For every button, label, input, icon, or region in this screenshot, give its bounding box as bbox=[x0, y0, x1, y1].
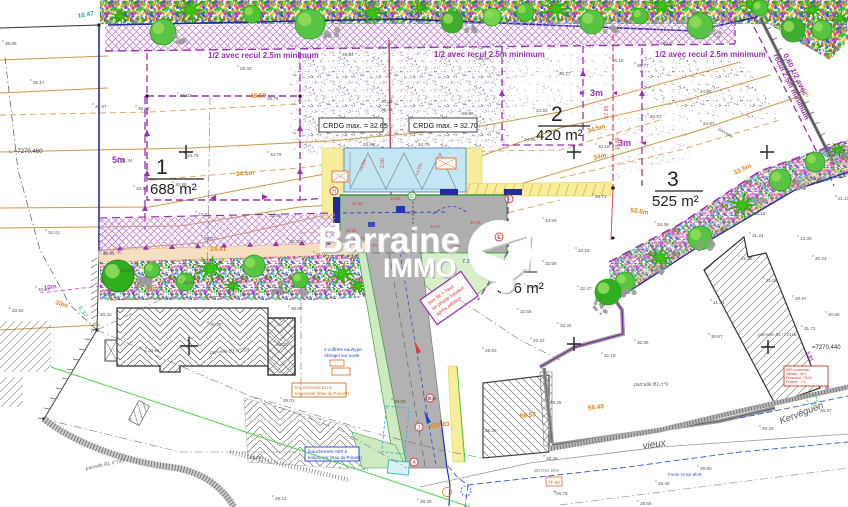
svg-text:29.37: 29.37 bbox=[820, 408, 832, 413]
svg-text:branchement AEP à: branchement AEP à bbox=[308, 449, 348, 454]
svg-text:34.79: 34.79 bbox=[418, 142, 430, 147]
svg-text:31.72: 31.72 bbox=[804, 326, 816, 331]
svg-text:32.22: 32.22 bbox=[533, 338, 545, 343]
svg-text:31.34: 31.34 bbox=[121, 158, 133, 163]
svg-text:688 m²: 688 m² bbox=[150, 181, 197, 198]
svg-text:G: G bbox=[410, 194, 414, 200]
svg-text:35.58: 35.58 bbox=[138, 106, 150, 111]
svg-text:35.77: 35.77 bbox=[637, 63, 649, 68]
svg-text:31.24: 31.24 bbox=[752, 233, 764, 238]
svg-text:30.48: 30.48 bbox=[120, 268, 132, 273]
svg-text:33.71: 33.71 bbox=[595, 194, 607, 199]
svg-text:525 m²: 525 m² bbox=[652, 193, 699, 210]
svg-text:31.15: 31.15 bbox=[838, 196, 848, 201]
svg-text:33.18: 33.18 bbox=[578, 248, 590, 253]
svg-text:33.23: 33.23 bbox=[183, 280, 195, 285]
svg-text:CRDG max. = 32.70: CRDG max. = 32.70 bbox=[413, 121, 478, 130]
svg-text:Abrogel sur socle: Abrogel sur socle bbox=[324, 353, 360, 358]
svg-text:28.95: 28.95 bbox=[425, 396, 437, 401]
svg-text:Penteée : 1,9: Penteée : 1,9 bbox=[786, 380, 805, 384]
svg-text:32.55: 32.55 bbox=[390, 196, 401, 201]
svg-text:34.41: 34.41 bbox=[48, 230, 60, 235]
svg-text:30.23: 30.23 bbox=[815, 256, 827, 261]
svg-text:CRDG max. = 32.65: CRDG max. = 32.65 bbox=[323, 121, 388, 130]
svg-text:28.46: 28.46 bbox=[658, 481, 670, 486]
svg-text:2: 2 bbox=[551, 103, 563, 126]
svg-text:36.17: 36.17 bbox=[33, 80, 45, 85]
svg-text:parcelle B1 n°9: parcelle B1 n°9 bbox=[633, 382, 668, 388]
svg-text:28.55: 28.55 bbox=[640, 501, 652, 506]
svg-text:34.55: 34.55 bbox=[404, 210, 416, 215]
svg-text:33.29: 33.29 bbox=[104, 292, 116, 297]
svg-text:24.87: 24.87 bbox=[703, 121, 715, 126]
svg-text:33m: 33m bbox=[145, 285, 158, 292]
svg-text:32.46: 32.46 bbox=[352, 201, 363, 206]
svg-text:28.39: 28.39 bbox=[546, 456, 558, 461]
svg-text:32.58: 32.58 bbox=[520, 309, 532, 314]
svg-text:28.93: 28.93 bbox=[394, 399, 406, 404]
svg-text:1: 1 bbox=[156, 156, 168, 179]
svg-text:30.51: 30.51 bbox=[103, 251, 115, 256]
svg-text:=7270,440: =7270,440 bbox=[812, 345, 841, 351]
svg-text:34.75: 34.75 bbox=[187, 153, 199, 158]
svg-text:30.88: 30.88 bbox=[175, 182, 187, 187]
svg-text:29.54: 29.54 bbox=[342, 52, 354, 57]
svg-text:32.47: 32.47 bbox=[580, 286, 592, 291]
svg-text:25.15: 25.15 bbox=[612, 58, 624, 63]
svg-text:34.83: 34.83 bbox=[536, 108, 548, 113]
svg-text:-17.89: -17.89 bbox=[604, 106, 610, 120]
svg-text:2.00: 2.00 bbox=[380, 158, 386, 168]
svg-text:29.68: 29.68 bbox=[478, 56, 490, 61]
svg-text:30.67: 30.67 bbox=[711, 334, 723, 339]
svg-text:30.43: 30.43 bbox=[100, 312, 112, 317]
svg-text:29.01: 29.01 bbox=[283, 398, 295, 403]
svg-text:2 coffrets eau/type: 2 coffrets eau/type bbox=[324, 347, 362, 352]
svg-text:34.48: 34.48 bbox=[657, 222, 669, 227]
svg-text:28.76: 28.76 bbox=[556, 491, 568, 496]
svg-text:35.41: 35.41 bbox=[381, 107, 393, 112]
svg-text:30.73: 30.73 bbox=[290, 239, 302, 244]
svg-text:parcelle B1 n°21№: parcelle B1 n°21№ bbox=[757, 332, 797, 337]
svg-text:33.92: 33.92 bbox=[12, 308, 24, 313]
svg-text:35.67: 35.67 bbox=[95, 104, 107, 109]
svg-text:temporiser (Eau du Ponant): temporiser (Eau du Ponant) bbox=[295, 391, 349, 396]
svg-text:∟=7270,460: ∟=7270,460 bbox=[8, 149, 43, 155]
svg-text:28.25: 28.25 bbox=[485, 428, 497, 433]
svg-text:30.96: 30.96 bbox=[637, 340, 649, 345]
svg-text:30.07: 30.07 bbox=[204, 236, 216, 241]
svg-text:30.77: 30.77 bbox=[559, 71, 571, 76]
svg-text:34.76: 34.76 bbox=[270, 152, 282, 157]
svg-text:1/2 avec recul 2.5m minimum: 1/2 avec recul 2.5m minimum bbox=[208, 51, 319, 60]
svg-text:3m: 3m bbox=[590, 88, 603, 98]
svg-text:30.35: 30.35 bbox=[210, 322, 222, 327]
svg-text:34.18: 34.18 bbox=[754, 211, 766, 216]
svg-text:TP 60: TP 60 bbox=[548, 480, 560, 485]
svg-text:30.56: 30.56 bbox=[148, 348, 160, 353]
svg-text:30.98: 30.98 bbox=[527, 284, 539, 289]
svg-text:29.33: 29.33 bbox=[240, 66, 252, 71]
svg-text:420 m²: 420 m² bbox=[536, 127, 583, 144]
svg-text:BETON Ø49: BETON Ø49 bbox=[534, 468, 560, 473]
svg-text:28.38: 28.38 bbox=[250, 455, 262, 460]
svg-text:30.85: 30.85 bbox=[828, 312, 840, 317]
svg-text:33.27: 33.27 bbox=[38, 287, 50, 292]
svg-text:14.89: 14.89 bbox=[615, 137, 621, 150]
svg-text:33.83: 33.83 bbox=[198, 212, 210, 217]
svg-text:24.85: 24.85 bbox=[700, 89, 712, 94]
svg-text:35.09: 35.09 bbox=[462, 111, 474, 116]
svg-text:33.15: 33.15 bbox=[810, 176, 822, 181]
svg-text:29.25: 29.25 bbox=[550, 400, 562, 405]
svg-text:13.39: 13.39 bbox=[800, 236, 812, 241]
svg-text:30.97: 30.97 bbox=[795, 296, 807, 301]
svg-text:3: 3 bbox=[667, 168, 679, 191]
svg-text:30.59: 30.59 bbox=[276, 290, 288, 295]
svg-text:34.24: 34.24 bbox=[136, 186, 148, 191]
svg-text:32.76: 32.76 bbox=[470, 220, 481, 225]
svg-text:34.5m: 34.5m bbox=[236, 170, 255, 178]
svg-text:31.31: 31.31 bbox=[713, 300, 725, 305]
svg-text:branchement EU à: branchement EU à bbox=[295, 385, 332, 390]
svg-text:48.59: 48.59 bbox=[250, 92, 267, 100]
svg-text:29.14: 29.14 bbox=[275, 496, 287, 501]
svg-text:36.03: 36.03 bbox=[180, 93, 192, 98]
svg-text:34.18: 34.18 bbox=[598, 144, 610, 149]
svg-text:35.78: 35.78 bbox=[267, 96, 279, 101]
svg-text:30.86: 30.86 bbox=[291, 306, 303, 311]
svg-text:33.85: 33.85 bbox=[269, 213, 281, 218]
svg-text:35.15: 35.15 bbox=[660, 41, 672, 46]
svg-text:34.86: 34.86 bbox=[363, 142, 375, 147]
svg-text:33.20: 33.20 bbox=[276, 342, 288, 347]
svg-text:32.19: 32.19 bbox=[604, 353, 616, 358]
svg-text:36.88: 36.88 bbox=[5, 41, 17, 46]
svg-text:IMMO: IMMO bbox=[383, 253, 457, 283]
svg-text:28.80: 28.80 bbox=[700, 466, 712, 471]
svg-text:29.26: 29.26 bbox=[762, 426, 774, 431]
svg-text:30.33: 30.33 bbox=[381, 99, 393, 104]
svg-text:1/2 avec recul 2.5m minimum: 1/2 avec recul 2.5m minimum bbox=[655, 50, 766, 59]
svg-text:29.83: 29.83 bbox=[485, 348, 497, 353]
svg-text:32.32: 32.32 bbox=[560, 323, 572, 328]
svg-text:Fonte Grise Ø49: Fonte Grise Ø49 bbox=[668, 472, 702, 477]
svg-text:34.87: 34.87 bbox=[650, 114, 662, 119]
svg-text:32.58: 32.58 bbox=[545, 261, 557, 266]
svg-text:H: H bbox=[332, 189, 336, 195]
svg-text:34.58: 34.58 bbox=[545, 218, 557, 223]
svg-text:31.35: 31.35 bbox=[741, 256, 753, 261]
svg-text:28.39: 28.39 bbox=[420, 499, 432, 504]
svg-text:31.09: 31.09 bbox=[766, 278, 778, 283]
svg-text:34.85: 34.85 bbox=[524, 137, 536, 142]
